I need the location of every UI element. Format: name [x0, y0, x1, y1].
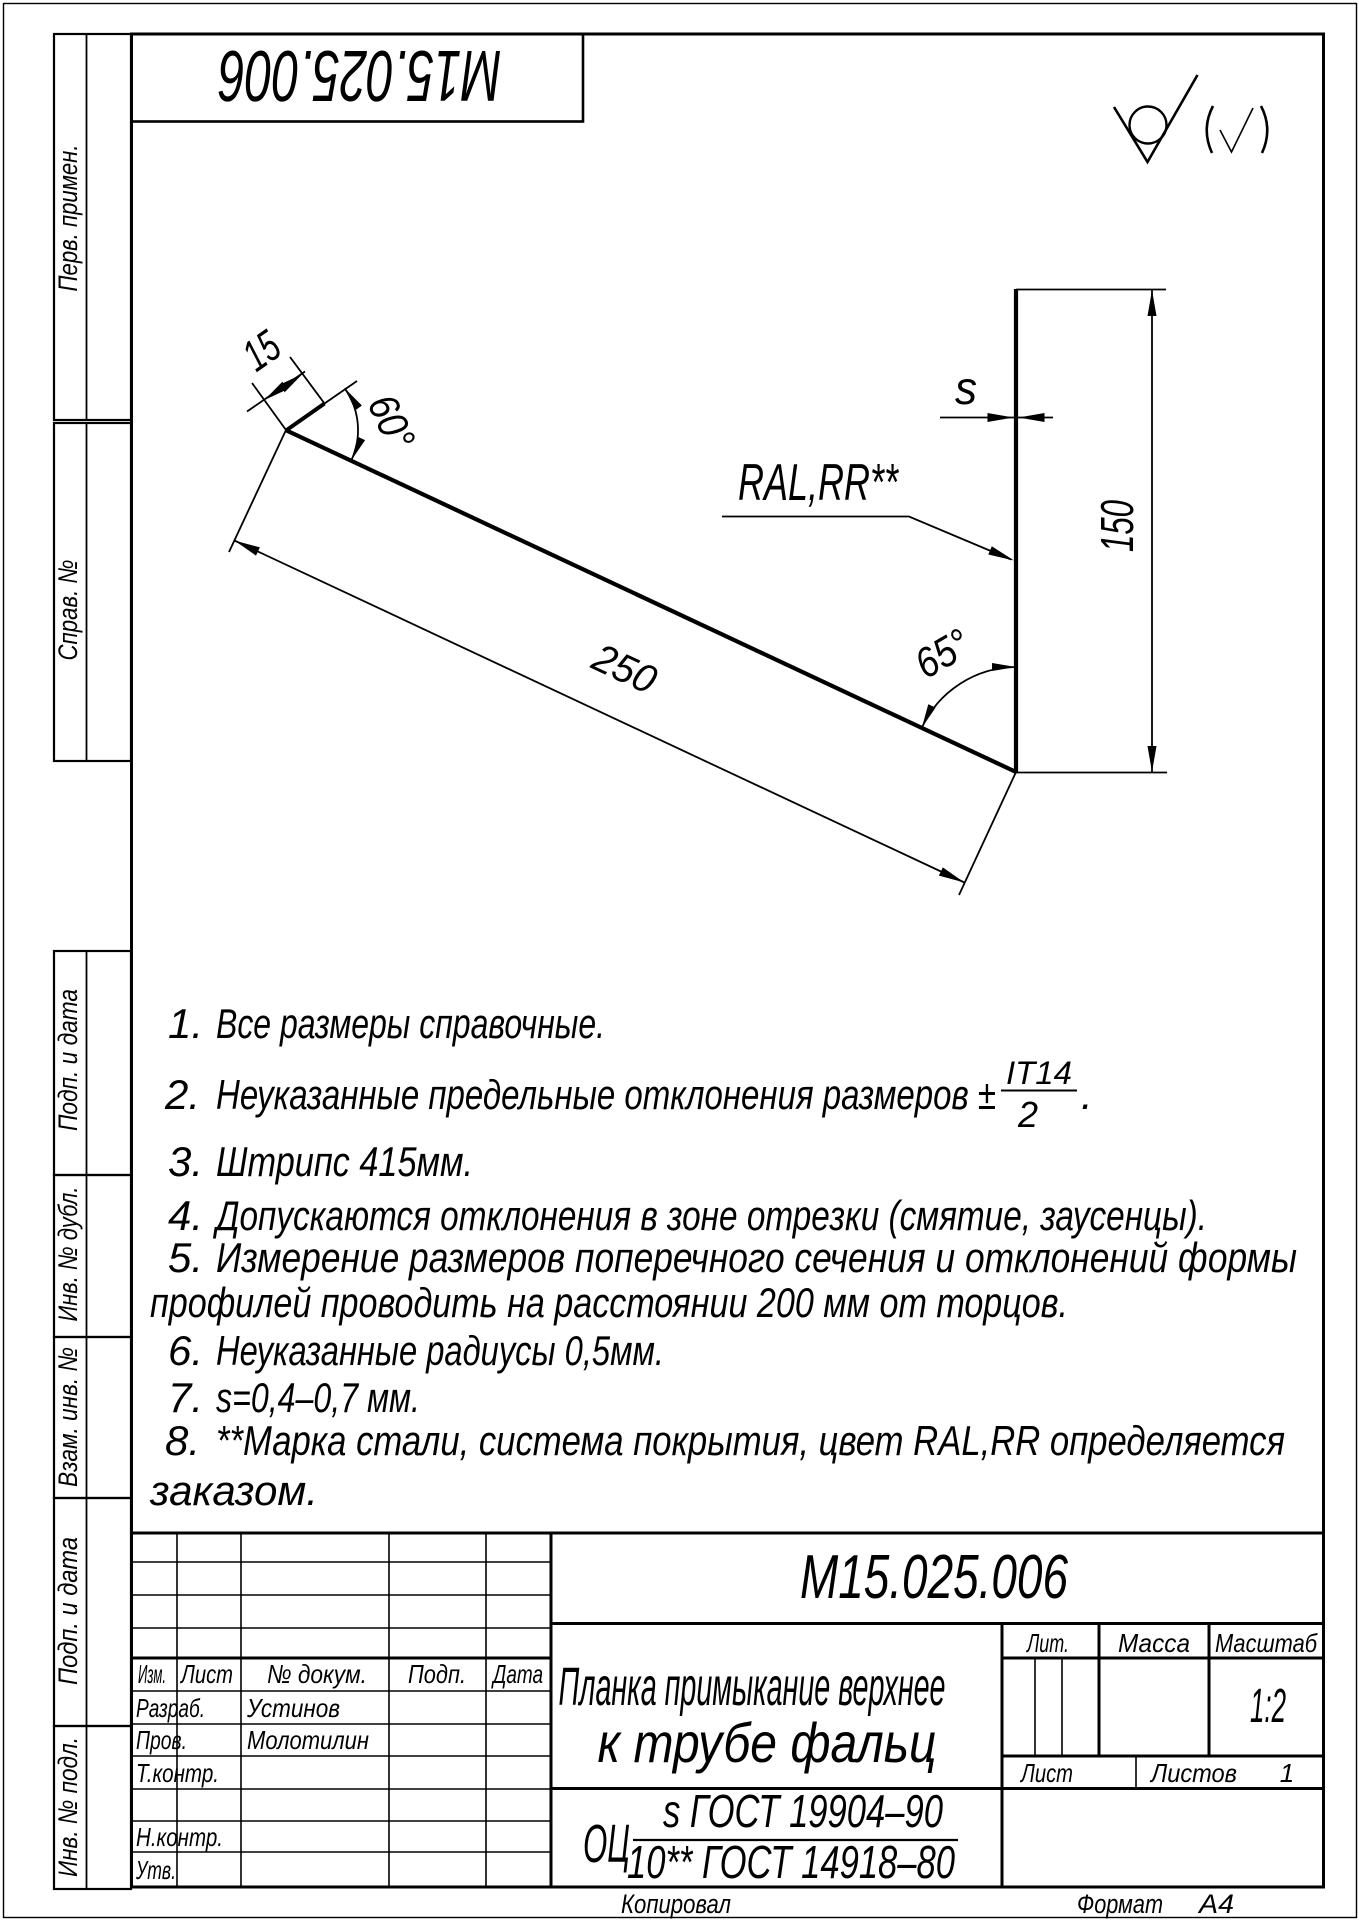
svg-text:IT14: IT14: [1006, 1055, 1072, 1091]
svg-text:150: 150: [1091, 500, 1143, 552]
svg-text:15: 15: [234, 321, 290, 381]
svg-text:4.: 4.: [168, 1192, 203, 1239]
svg-text:250: 250: [585, 635, 663, 703]
svg-text:Взам. инв. №: Взам. инв. №: [53, 1347, 83, 1487]
svg-text:Неуказанные радиусы 0,5мм.: Неуказанные радиусы 0,5мм.: [216, 1327, 664, 1374]
svg-text:Молотилин: Молотилин: [247, 1725, 369, 1755]
svg-text:2.: 2.: [164, 1071, 200, 1118]
svg-text:Разраб.: Разраб.: [136, 1693, 205, 1723]
svg-text:Неуказанные предельные отклоне: Неуказанные предельные отклонения размер…: [216, 1071, 996, 1118]
svg-text:Лист: Лист: [1019, 1758, 1073, 1788]
svg-text:Подп. и дата: Подп. и дата: [53, 1537, 83, 1685]
svg-text:s=0,4–0,7 мм.: s=0,4–0,7 мм.: [216, 1374, 420, 1421]
svg-text:Подп. и дата: Подп. и дата: [53, 989, 83, 1131]
svg-text:7.: 7.: [168, 1374, 203, 1421]
svg-text:Н.контр.: Н.контр.: [136, 1822, 223, 1852]
svg-text:Инв. № дубл.: Инв. № дубл.: [53, 1187, 83, 1322]
svg-text:Изм.: Изм.: [138, 1659, 166, 1689]
svg-text:Листов: Листов: [1149, 1758, 1237, 1788]
svg-text:Измерение размеров поперечного: Измерение размеров поперечного сечения и…: [216, 1234, 1297, 1281]
svg-text:Лист: Лист: [179, 1659, 233, 1689]
svg-text:.: .: [1081, 1071, 1093, 1118]
svg-text:**Марка стали, система покрыти: **Марка стали, система покрытия, цвет RA…: [216, 1417, 1285, 1464]
svg-text:s ГОСТ 19904–90: s ГОСТ 19904–90: [663, 1785, 943, 1837]
svg-text:ОЦ: ОЦ: [583, 1814, 630, 1874]
svg-text:к трубе фальц: к трубе фальц: [598, 1711, 937, 1774]
svg-text:10** ГОСТ 14918–80: 10** ГОСТ 14918–80: [627, 1836, 955, 1888]
svg-text:профилей проводить на расстоян: профилей проводить на расстоянии 200 мм …: [150, 1279, 1068, 1326]
svg-text:М15.025.006: М15.025.006: [800, 1543, 1068, 1612]
svg-text:Формат: Формат: [1077, 1889, 1163, 1919]
svg-text:Масса: Масса: [1118, 1628, 1190, 1658]
svg-text:Утв.: Утв.: [135, 1855, 176, 1885]
svg-text:№ докум.: № докум.: [267, 1659, 367, 1689]
svg-text:5.: 5.: [168, 1234, 203, 1281]
svg-text:Масштаб: Масштаб: [1215, 1628, 1318, 1658]
svg-text:1: 1: [1280, 1758, 1294, 1788]
svg-text:заказом.: заказом.: [149, 1467, 318, 1514]
svg-text:RAL,RR**: RAL,RR**: [738, 454, 899, 512]
svg-text:Допускаются отклонения в зоне: Допускаются отклонения в зоне отрезки (с…: [213, 1192, 1207, 1239]
svg-text:Все размеры справочные.: Все размеры справочные.: [216, 1000, 605, 1047]
svg-text:2: 2: [1017, 1094, 1038, 1135]
svg-text:М15.025.006: М15.025.006: [218, 35, 502, 115]
svg-text:Планка примыкание верхнее: Планка примыкание верхнее: [559, 1657, 946, 1717]
svg-text:А4: А4: [1197, 1889, 1234, 1919]
svg-text:Копировал: Копировал: [621, 1889, 731, 1919]
svg-text:3.: 3.: [168, 1138, 203, 1185]
svg-text:Пров.: Пров.: [136, 1725, 187, 1755]
svg-text:1.: 1.: [168, 1000, 203, 1047]
svg-text:Штрипс 415мм.: Штрипс 415мм.: [216, 1138, 473, 1185]
svg-text:1:2: 1:2: [1250, 1680, 1286, 1733]
svg-text:s: s: [955, 362, 977, 414]
svg-text:Лит.: Лит.: [1026, 1628, 1069, 1658]
svg-text:8.: 8.: [165, 1417, 200, 1464]
svg-text:Инв. № подл.: Инв. № подл.: [53, 1737, 83, 1877]
svg-text:Справ. №: Справ. №: [53, 560, 83, 661]
svg-text:Подп.: Подп.: [408, 1659, 466, 1689]
svg-text:60°: 60°: [359, 387, 425, 457]
svg-text:Дата: Дата: [491, 1659, 543, 1689]
svg-text:65°: 65°: [907, 619, 978, 687]
svg-text:Устинов: Устинов: [246, 1693, 340, 1723]
svg-text:6.: 6.: [168, 1327, 203, 1374]
svg-text:Т.контр.: Т.контр.: [136, 1758, 219, 1788]
svg-text:Перв. примен.: Перв. примен.: [53, 145, 83, 292]
